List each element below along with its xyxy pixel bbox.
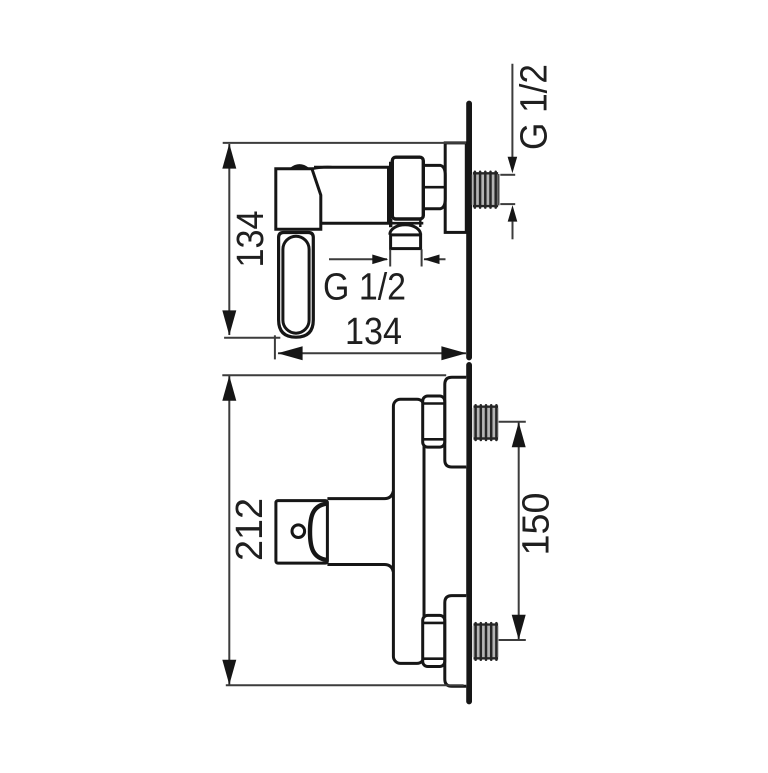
svg-text:134: 134 bbox=[345, 311, 402, 353]
svg-text:134: 134 bbox=[230, 211, 272, 268]
svg-text:212: 212 bbox=[229, 498, 271, 561]
svg-text:G 1/2: G 1/2 bbox=[514, 64, 556, 150]
svg-text:G 1/2: G 1/2 bbox=[323, 267, 406, 309]
svg-text:150: 150 bbox=[516, 493, 558, 556]
